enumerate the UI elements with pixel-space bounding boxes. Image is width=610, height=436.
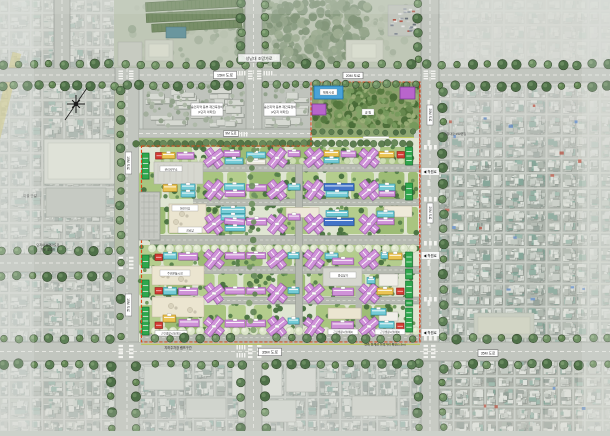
svg-text:중심상가: 중심상가 <box>338 274 349 278</box>
svg-text:어린이집: 어린이집 <box>180 207 191 211</box>
svg-text:◀ 학원로: ◀ 학원로 <box>423 253 436 258</box>
svg-text:경원대로 292번길: 경원대로 292번길 <box>444 131 467 136</box>
svg-text:단지내 보행자도로: 단지내 보행자도로 <box>37 242 60 247</box>
svg-text:◀ 학원로: ◀ 학원로 <box>423 330 436 335</box>
svg-text:20M 도로: 20M 도로 <box>428 109 432 122</box>
svg-text:공 원: 공 원 <box>365 110 372 115</box>
svg-text:근린생활시설(예1): 근린생활시설(예1) <box>161 332 181 336</box>
svg-text:지하주차장 램프구간: 지하주차장 램프구간 <box>164 345 191 350</box>
svg-text:근린생활시설(예3): 근린생활시설(예3) <box>380 330 400 334</box>
svg-text:체육시설: 체육시설 <box>323 90 334 95</box>
svg-text:35M 도로: 35M 도로 <box>262 349 279 354</box>
svg-text:가로 활성화: 가로 활성화 <box>41 247 56 252</box>
svg-text:경로당: 경로당 <box>186 229 194 233</box>
svg-text:20M 도로: 20M 도로 <box>428 207 432 220</box>
svg-text:성남대 조망가로: 성남대 조망가로 <box>246 55 273 61</box>
svg-text:주민운동시설: 주민운동시설 <box>167 272 183 276</box>
svg-text:◀ 학원로: ◀ 학원로 <box>423 169 436 174</box>
svg-text:관리사무소: 관리사무소 <box>165 167 178 171</box>
svg-text:15M 도로: 15M 도로 <box>217 72 234 77</box>
svg-text:(1단지 아파트): (1단지 아파트) <box>198 109 216 114</box>
svg-text:20M 도로: 20M 도로 <box>346 74 361 78</box>
svg-text:15M 도로: 15M 도로 <box>126 298 130 312</box>
svg-text:숭인지역 동부 재건축정비: 숭인지역 동부 재건축정비 <box>264 104 296 109</box>
svg-text:숭인지역 동부 재건축정비: 숭인지역 동부 재건축정비 <box>191 104 223 109</box>
svg-text:35M 도로: 35M 도로 <box>481 351 496 355</box>
svg-text:(2단지 아파트): (2단지 아파트) <box>271 109 289 114</box>
svg-text:15M 도로: 15M 도로 <box>126 156 130 170</box>
svg-text:건축 한계선 이격거리 확보(1.5m): 건축 한계선 이격거리 확보(1.5m) <box>364 342 406 347</box>
svg-text:9M 도로: 9M 도로 <box>225 132 236 136</box>
